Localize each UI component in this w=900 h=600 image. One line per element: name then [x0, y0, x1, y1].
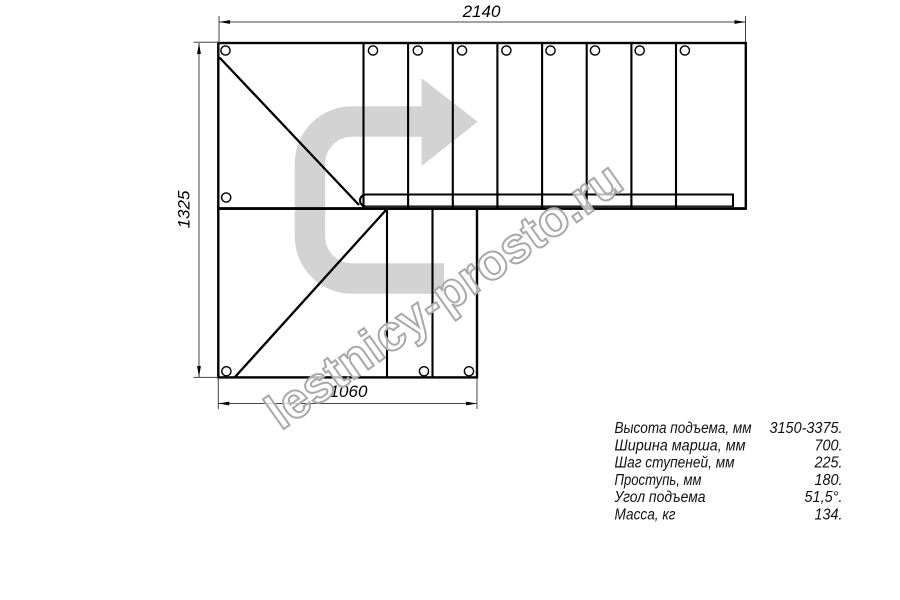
svg-text:1325: 1325: [175, 190, 194, 228]
svg-text:225.: 225.: [814, 455, 843, 472]
svg-text:Шаг ступеней, мм: Шаг ступеней, мм: [615, 455, 735, 472]
svg-text:Высота подъема, мм: Высота подъема, мм: [615, 420, 752, 437]
svg-text:Ширина марша, мм: Ширина марша, мм: [615, 437, 746, 454]
svg-text:Масса, кг: Масса, кг: [615, 507, 676, 524]
svg-text:700.: 700.: [815, 437, 843, 454]
svg-text:180.: 180.: [815, 472, 843, 489]
svg-text:3150-3375.: 3150-3375.: [770, 420, 843, 437]
svg-text:51,5°.: 51,5°.: [805, 489, 843, 506]
svg-text:2140: 2140: [462, 2, 501, 21]
svg-text:Угол подъема: Угол подъема: [614, 489, 706, 506]
svg-text:134.: 134.: [815, 507, 843, 524]
svg-text:Проступь, мм: Проступь, мм: [615, 472, 702, 489]
